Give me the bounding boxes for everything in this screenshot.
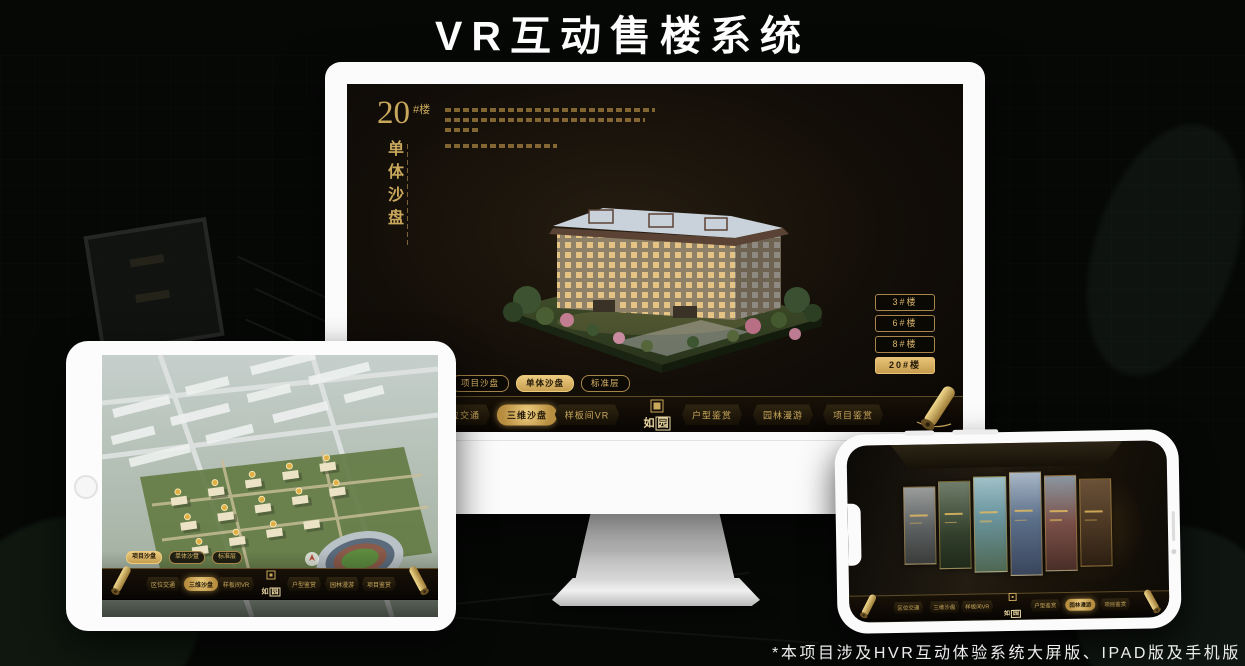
hero-banner: VR互动售楼系统 20 #楼 单体沙盘	[0, 0, 1245, 666]
gallery-panel-building[interactable]	[1008, 471, 1042, 576]
nav-item-label: 户型鉴赏	[692, 410, 732, 420]
floor-button-6[interactable]: 6#楼	[875, 315, 935, 332]
nav-item-unit-plans[interactable]: 户型鉴赏	[287, 577, 321, 591]
ipad-main-navbar: 区位交通 三维沙盘 样板间VR 如园 户型鉴赏 园林漫游 项目鉴赏	[102, 568, 438, 600]
nav-item-project-gallery[interactable]: 项目鉴赏	[1100, 598, 1130, 611]
subtab-standard-floor[interactable]: 标准层	[581, 375, 630, 392]
nav-item-label: 户型鉴赏	[1034, 603, 1056, 609]
background-map-texture	[975, 55, 1245, 435]
section-title-vertical: 单体沙盘	[381, 140, 405, 232]
nav-item-label: 样板间VR	[223, 583, 249, 589]
ipad-app-screen: 项目沙盘 单体沙盘 标准层 区位交通 三维沙盘 样板间VR 如园 户型鉴赏 园林…	[102, 355, 438, 617]
subtab-single-sandbox[interactable]: 单体沙盘	[516, 375, 574, 392]
nav-item-label: 项目鉴赏	[367, 583, 391, 589]
floor-button-8[interactable]: 8#楼	[875, 336, 935, 353]
seal-icon	[267, 571, 276, 580]
scroll-icon[interactable]	[915, 382, 963, 432]
floor-button-3[interactable]: 3#楼	[875, 294, 935, 311]
nav-item-garden-tour[interactable]: 园林漫游	[1065, 598, 1095, 611]
nav-item-garden-tour[interactable]: 园林漫游	[753, 404, 813, 425]
nav-item-unit-plans[interactable]: 户型鉴赏	[1030, 599, 1060, 612]
logo-text: 如	[644, 417, 655, 429]
building-3d-render[interactable]	[497, 150, 827, 388]
nav-item-project-gallery[interactable]: 项目鉴赏	[362, 577, 396, 591]
phone-camera-dot	[1171, 549, 1176, 554]
floor-button-20[interactable]: 20#楼	[875, 357, 935, 374]
brand-logo: 如园	[262, 571, 281, 598]
nav-item-unit-plans[interactable]: 户型鉴赏	[682, 404, 742, 425]
logo-text-boxed: 园	[1011, 610, 1021, 618]
subtab-single-sandbox[interactable]: 单体沙盘	[169, 551, 205, 564]
nav-item-label: 三维沙盘	[933, 605, 955, 611]
nav-item-garden-tour[interactable]: 园林漫游	[325, 577, 359, 591]
gallery-panel-red-building[interactable]	[1044, 475, 1078, 572]
nav-item-location[interactable]: 区位交通	[146, 577, 180, 591]
nav-item-label: 项目鉴赏	[833, 410, 873, 420]
gallery-panel-courtyard[interactable]	[903, 486, 937, 565]
brand-logo: 如园	[644, 399, 671, 430]
building-number-suffix: #楼	[413, 101, 430, 130]
ipad-frame: 项目沙盘 单体沙盘 标准层 区位交通 三维沙盘 样板间VR 如园 户型鉴赏 园林…	[66, 341, 456, 631]
background-plaque	[83, 217, 224, 355]
nav-item-label: 园林漫游	[330, 583, 354, 589]
phone-notch	[847, 504, 861, 566]
nav-item-showroom-vr[interactable]: 样板间VR	[555, 404, 620, 425]
building-number: 20	[377, 96, 410, 130]
phone-main-navbar: 区位交通 三维沙盘 样板间VR 如园 户型鉴赏 园林漫游 项目鉴赏	[849, 590, 1169, 622]
phone-app-screen: 区位交通 三维沙盘 样板间VR 如园 户型鉴赏 园林漫游 项目鉴赏	[846, 440, 1169, 623]
scroll-icon[interactable]	[108, 563, 134, 599]
nav-item-label: 园林漫游	[1069, 603, 1091, 609]
monitor-stand-base	[552, 578, 760, 606]
logo-text: 如	[1004, 611, 1010, 617]
nav-item-3d-sandbox[interactable]: 三维沙盘	[184, 577, 218, 591]
background-map-texture	[0, 55, 330, 335]
logo-text: 如	[262, 589, 269, 596]
nav-item-label: 项目鉴赏	[1104, 602, 1126, 608]
nav-item-3d-sandbox[interactable]: 三维沙盘	[497, 404, 557, 425]
nav-item-project-gallery[interactable]: 项目鉴赏	[823, 404, 883, 425]
nav-item-label: 区位交通	[897, 606, 919, 612]
logo-text-boxed: 园	[270, 588, 281, 597]
nav-item-label: 三维沙盘	[189, 583, 213, 589]
scroll-icon[interactable]	[857, 591, 880, 621]
ipad-home-button[interactable]	[74, 475, 98, 499]
footnote-text: *本项目涉及HVR互动体验系统大屏版、IPAD版及手机版	[772, 639, 1241, 663]
ipad-sandbox-subtabs: 项目沙盘 单体沙盘 标准层	[126, 551, 242, 564]
subtab-project-sandbox[interactable]: 项目沙盘	[451, 375, 509, 392]
vertical-divider	[407, 144, 408, 246]
floor-button-group: 3#楼 6#楼 8#楼 20#楼	[875, 294, 935, 374]
subtab-standard-floor[interactable]: 标准层	[212, 551, 242, 564]
nav-item-showroom-vr[interactable]: 样板间VR	[961, 600, 993, 613]
phone-power-button[interactable]	[952, 429, 998, 435]
panorama-gallery	[903, 471, 1113, 577]
seal-icon	[651, 399, 664, 412]
courtyard-beam	[890, 441, 1122, 469]
logo-text-boxed: 园	[656, 416, 671, 430]
monitor-stand	[560, 514, 750, 580]
phone-device: 区位交通 三维沙盘 样板间VR 如园 户型鉴赏 园林漫游 项目鉴赏	[834, 429, 1181, 634]
gallery-panel-interior[interactable]	[1079, 478, 1113, 567]
phone-volume-button[interactable]	[904, 430, 934, 436]
gallery-panel-landscape[interactable]	[973, 476, 1007, 573]
phone-speaker-slot	[1171, 511, 1175, 541]
nav-item-showroom-vr[interactable]: 样板间VR	[218, 577, 254, 591]
nav-item-label: 三维沙盘	[507, 410, 547, 420]
sandbox-subtabs: 项目沙盘 单体沙盘 标准层	[451, 375, 630, 392]
nav-item-label: 样板间VR	[565, 410, 610, 420]
nav-item-label: 户型鉴赏	[292, 583, 316, 589]
building-heading: 20 #楼	[377, 96, 430, 130]
page-title: VR互动售楼系统	[0, 2, 1245, 62]
background-river	[1058, 105, 1245, 396]
nav-item-3d-sandbox[interactable]: 三维沙盘	[929, 601, 959, 614]
nav-item-label: 园林漫游	[763, 410, 803, 420]
scroll-icon[interactable]	[1141, 586, 1164, 616]
brand-logo: 如园	[1004, 593, 1021, 619]
scroll-icon[interactable]	[406, 563, 432, 599]
gallery-panel-garden[interactable]	[938, 481, 972, 570]
seal-icon	[1008, 593, 1016, 601]
nav-item-label: 样板间VR	[965, 604, 989, 610]
nav-item-label: 区位交通	[151, 583, 175, 589]
nav-item-location[interactable]: 区位交通	[893, 601, 923, 614]
